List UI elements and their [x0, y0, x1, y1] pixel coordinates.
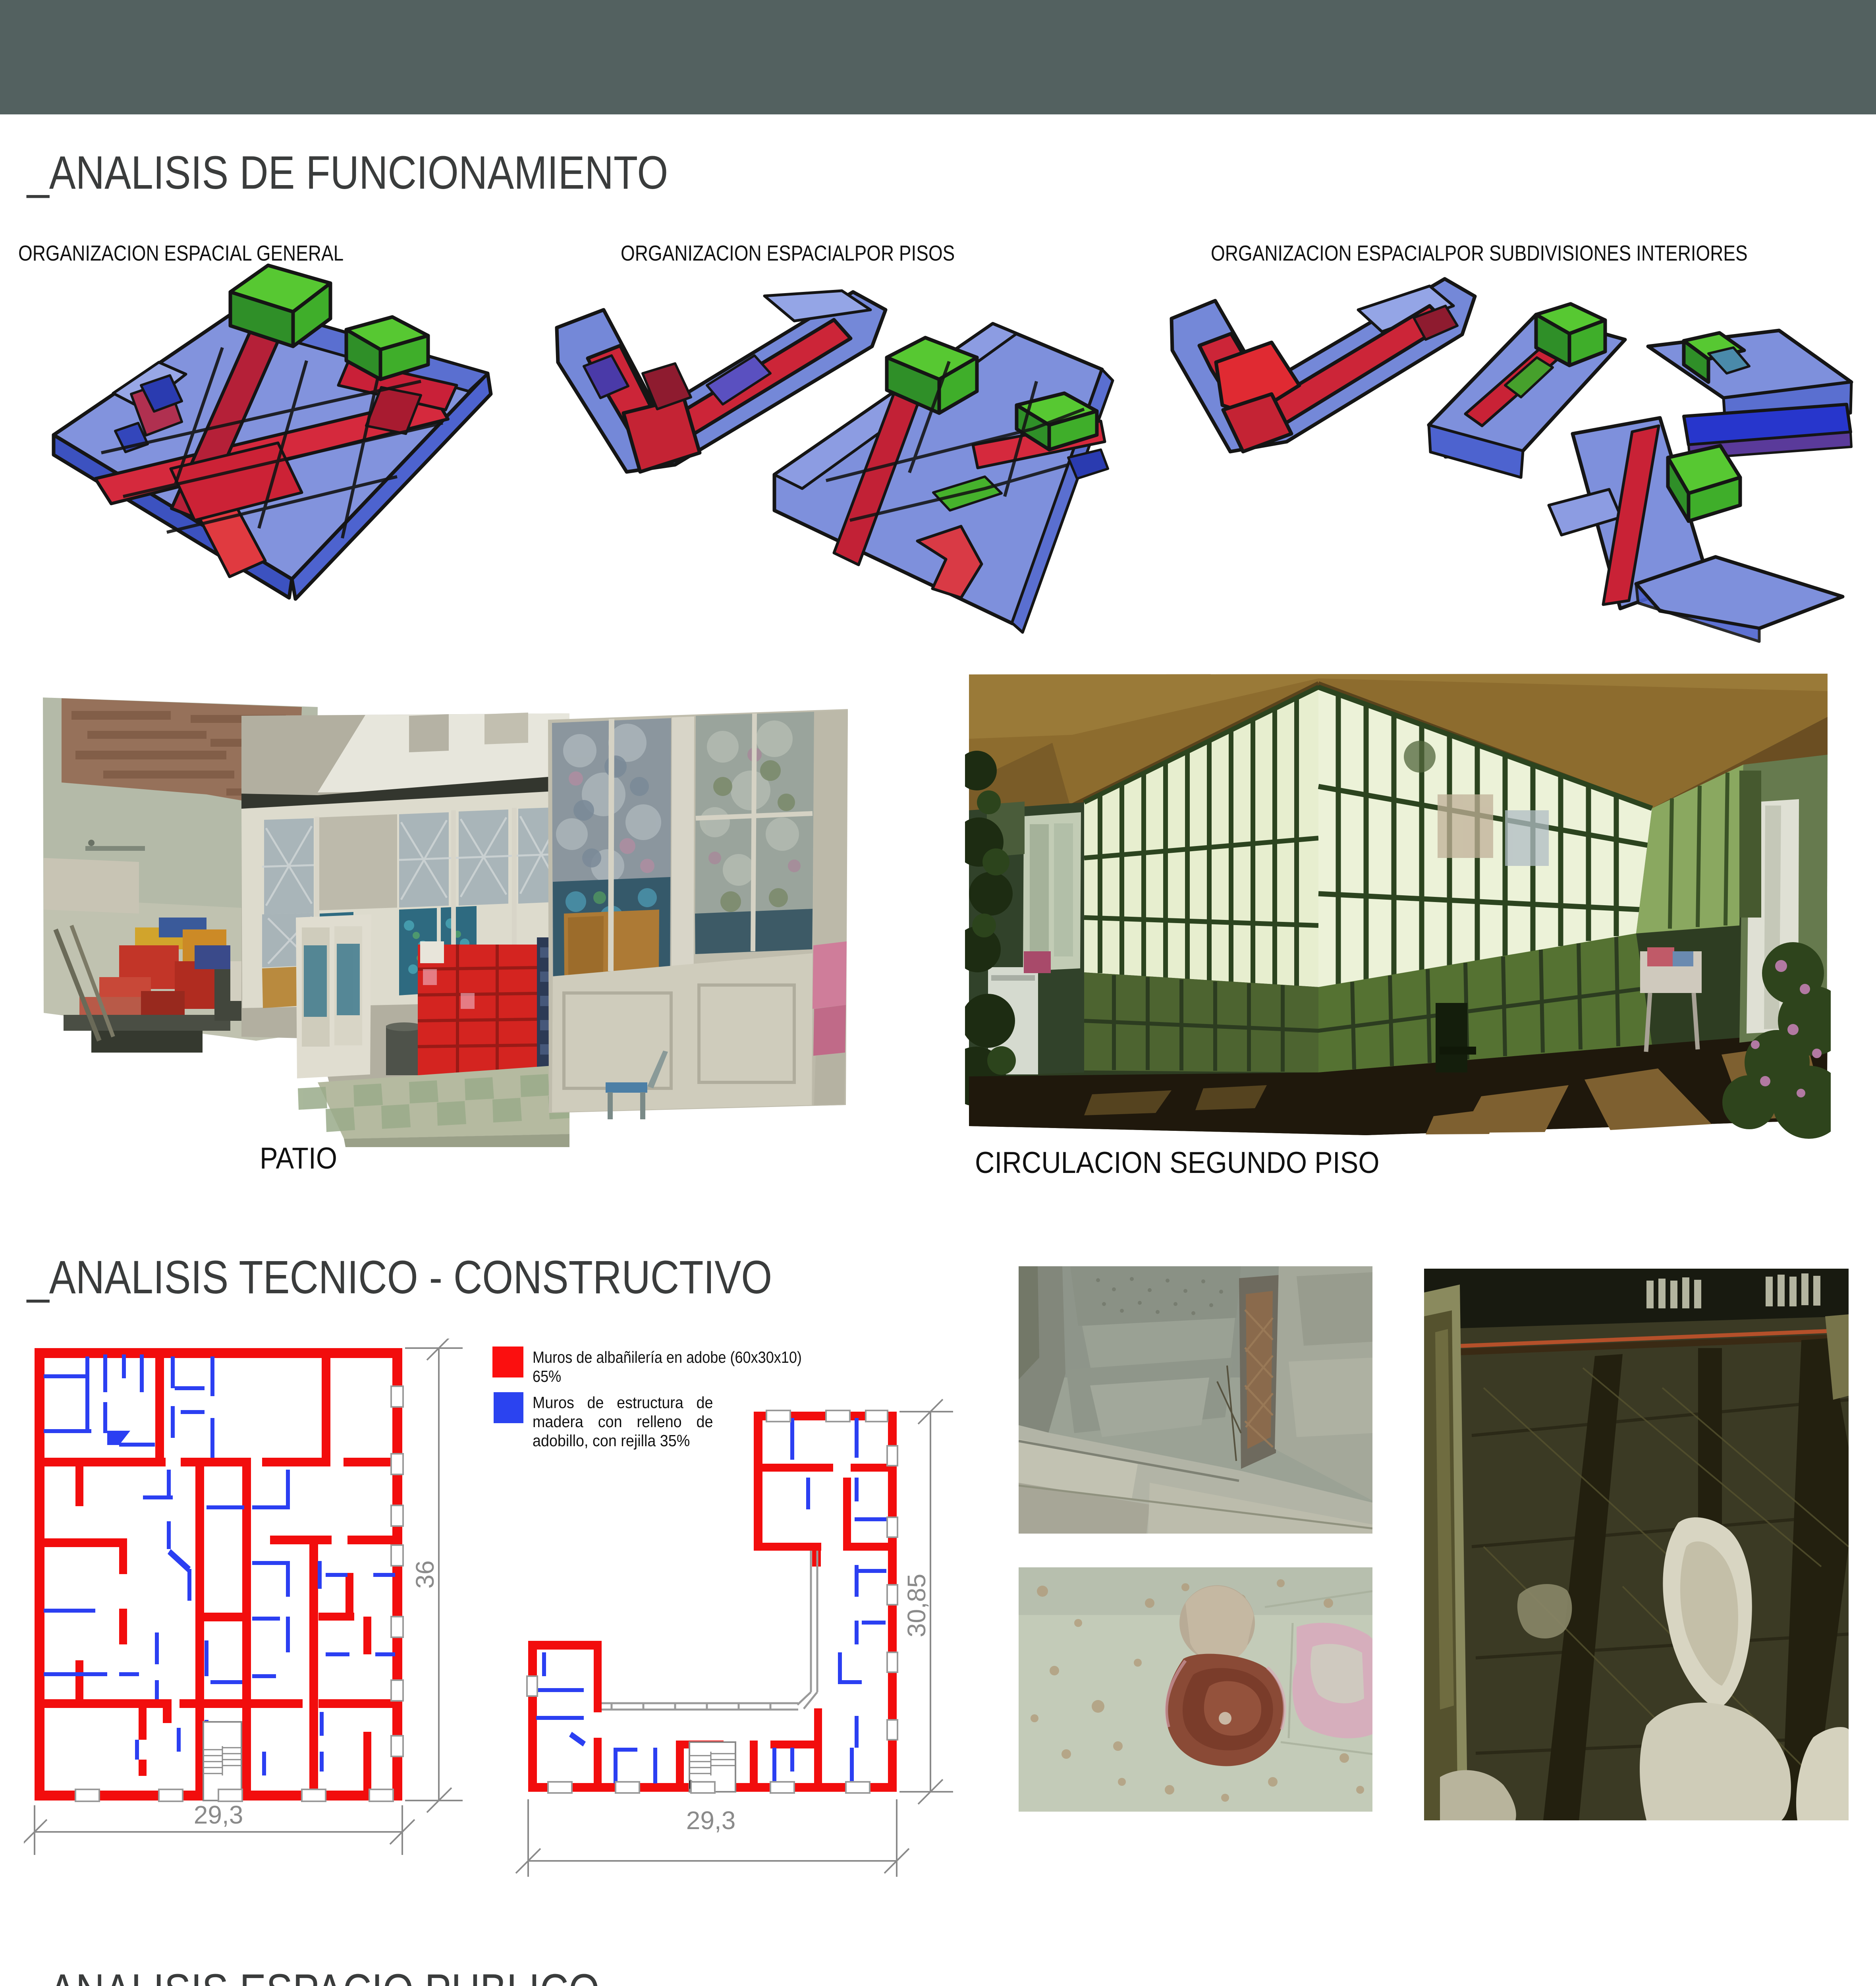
svg-text:36: 36	[411, 1560, 439, 1588]
svg-text:29,3: 29,3	[686, 1806, 736, 1835]
svg-text:30,85: 30,85	[902, 1574, 931, 1637]
svg-text:29,3: 29,3	[194, 1801, 243, 1829]
